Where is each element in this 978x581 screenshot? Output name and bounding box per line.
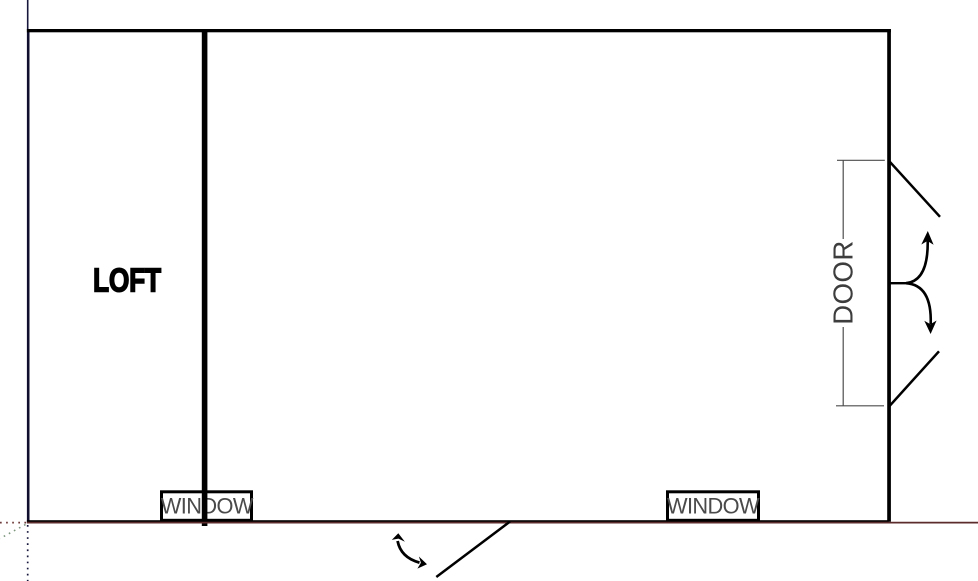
svg-text:WINDOW: WINDOW	[667, 494, 760, 519]
svg-text:DOOR: DOOR	[828, 240, 859, 325]
svg-text:LOFT: LOFT	[93, 263, 161, 299]
